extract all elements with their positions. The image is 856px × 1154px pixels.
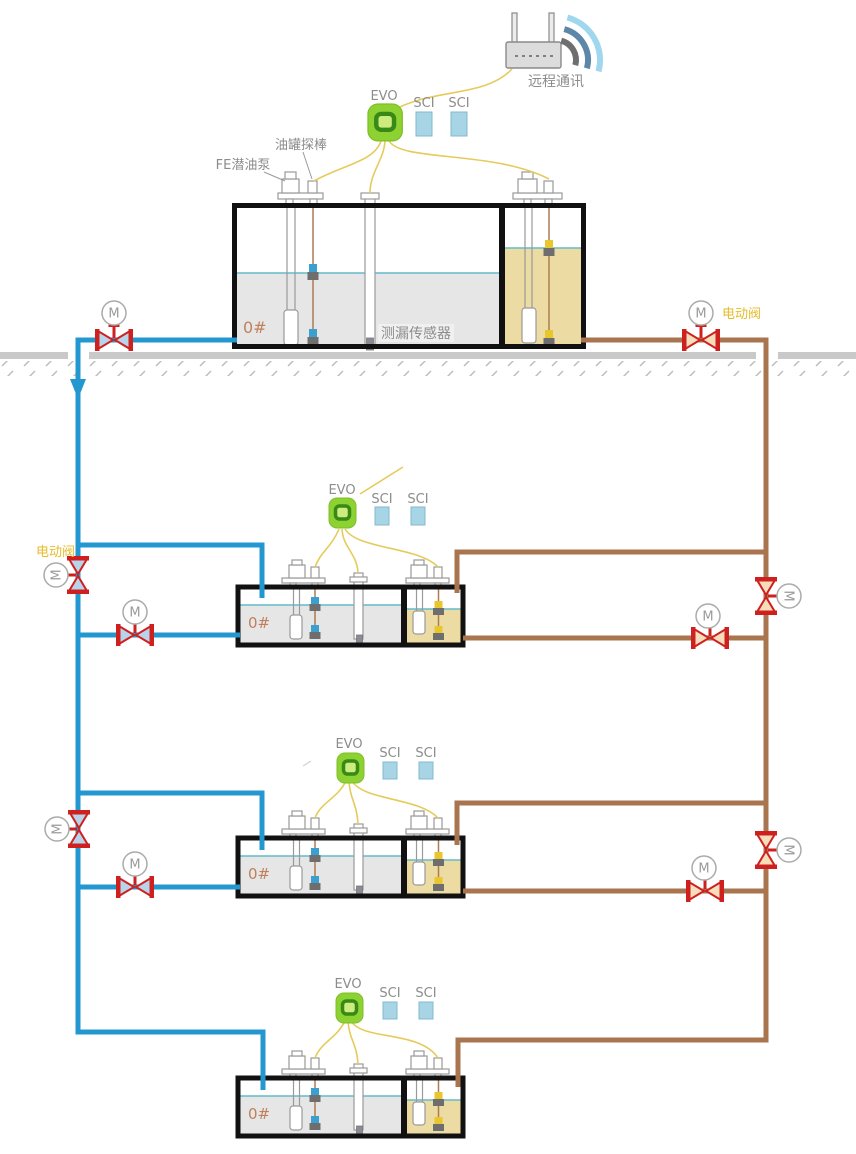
motor-indicator bbox=[45, 817, 69, 841]
evo-controller bbox=[336, 993, 363, 1023]
evo-controller bbox=[368, 104, 402, 141]
sci-label: SCI bbox=[448, 96, 469, 111]
sci-module bbox=[383, 762, 397, 779]
electric-valve-label: 电动阀 bbox=[722, 307, 761, 322]
sci-label: SCI bbox=[379, 746, 400, 761]
tank-probe-label: 油罐探棒 bbox=[275, 138, 327, 153]
remote-comm-label: 远程通讯 bbox=[528, 74, 584, 90]
evo-controller bbox=[337, 753, 364, 783]
controller-group-4: EVO SCI SCI bbox=[334, 977, 436, 1023]
evo-label: EVO bbox=[328, 483, 355, 498]
tank-probe-head bbox=[544, 181, 553, 193]
motor-indicator bbox=[44, 563, 68, 587]
fe-pump-wellhead bbox=[278, 172, 323, 207]
sci-label: SCI bbox=[415, 746, 436, 761]
tank-3 bbox=[238, 811, 463, 896]
return-pipeline-brown bbox=[457, 340, 766, 1087]
sci-label: SCI bbox=[379, 986, 400, 1001]
right-wellhead bbox=[513, 172, 562, 207]
sci-label: SCI bbox=[371, 492, 392, 507]
sci-module bbox=[419, 1002, 433, 1019]
tank-monitoring-schematic: M bbox=[0, 0, 856, 1154]
evo-label: EVO bbox=[335, 737, 362, 752]
ground-hatch bbox=[0, 361, 856, 376]
tank-2 bbox=[238, 560, 463, 645]
sci-module bbox=[375, 507, 389, 525]
down-arrow-icon bbox=[70, 379, 86, 399]
motor-indicator bbox=[777, 838, 801, 862]
sci-module bbox=[411, 507, 425, 525]
callouts: 油罐探棒 FE潜油泵 bbox=[216, 138, 327, 181]
tank-probe-head bbox=[308, 181, 317, 193]
submersible-pump bbox=[284, 310, 298, 345]
wifi-router-icon bbox=[506, 13, 561, 68]
sci-label: SCI bbox=[407, 492, 428, 507]
motor-indicator bbox=[777, 584, 801, 608]
motor-indicator bbox=[696, 604, 720, 628]
motor-indicator bbox=[123, 852, 147, 876]
leak-sensor-label: 测漏传感器 bbox=[381, 325, 451, 342]
electric-valve-label: 电动阀 bbox=[36, 545, 75, 560]
controller-group-3: EVO SCI SCI bbox=[335, 737, 436, 783]
fe-pump-label: FE潜油泵 bbox=[216, 158, 271, 173]
motor-indicator bbox=[123, 600, 147, 624]
evo-label: EVO bbox=[370, 89, 397, 104]
motor-indicator bbox=[689, 301, 713, 325]
evo-controller bbox=[329, 498, 356, 528]
submersible-pump bbox=[522, 308, 536, 343]
fuel-grade-label: 0# bbox=[243, 318, 267, 337]
sci-label: SCI bbox=[413, 96, 434, 111]
sci-label: SCI bbox=[415, 986, 436, 1001]
wifi-signal-arcs-icon bbox=[561, 18, 600, 72]
supply-pipeline-blue bbox=[78, 340, 263, 1090]
evo-label: EVO bbox=[334, 977, 361, 992]
controller-group-2: EVO SCI SCI bbox=[328, 483, 428, 528]
motor-indicator bbox=[102, 301, 126, 325]
sci-module bbox=[383, 1002, 397, 1019]
sci-module bbox=[416, 112, 432, 136]
diagram-canvas: M bbox=[0, 0, 856, 1154]
controller-group-1: EVO SCI SCI bbox=[368, 89, 470, 141]
tank-4 bbox=[238, 1051, 463, 1136]
sci-module bbox=[419, 762, 433, 779]
ground-line bbox=[0, 352, 856, 376]
motor-indicator bbox=[692, 856, 716, 880]
tank-1: 0# 测漏传感器 bbox=[235, 172, 584, 350]
sci-module bbox=[451, 112, 467, 136]
